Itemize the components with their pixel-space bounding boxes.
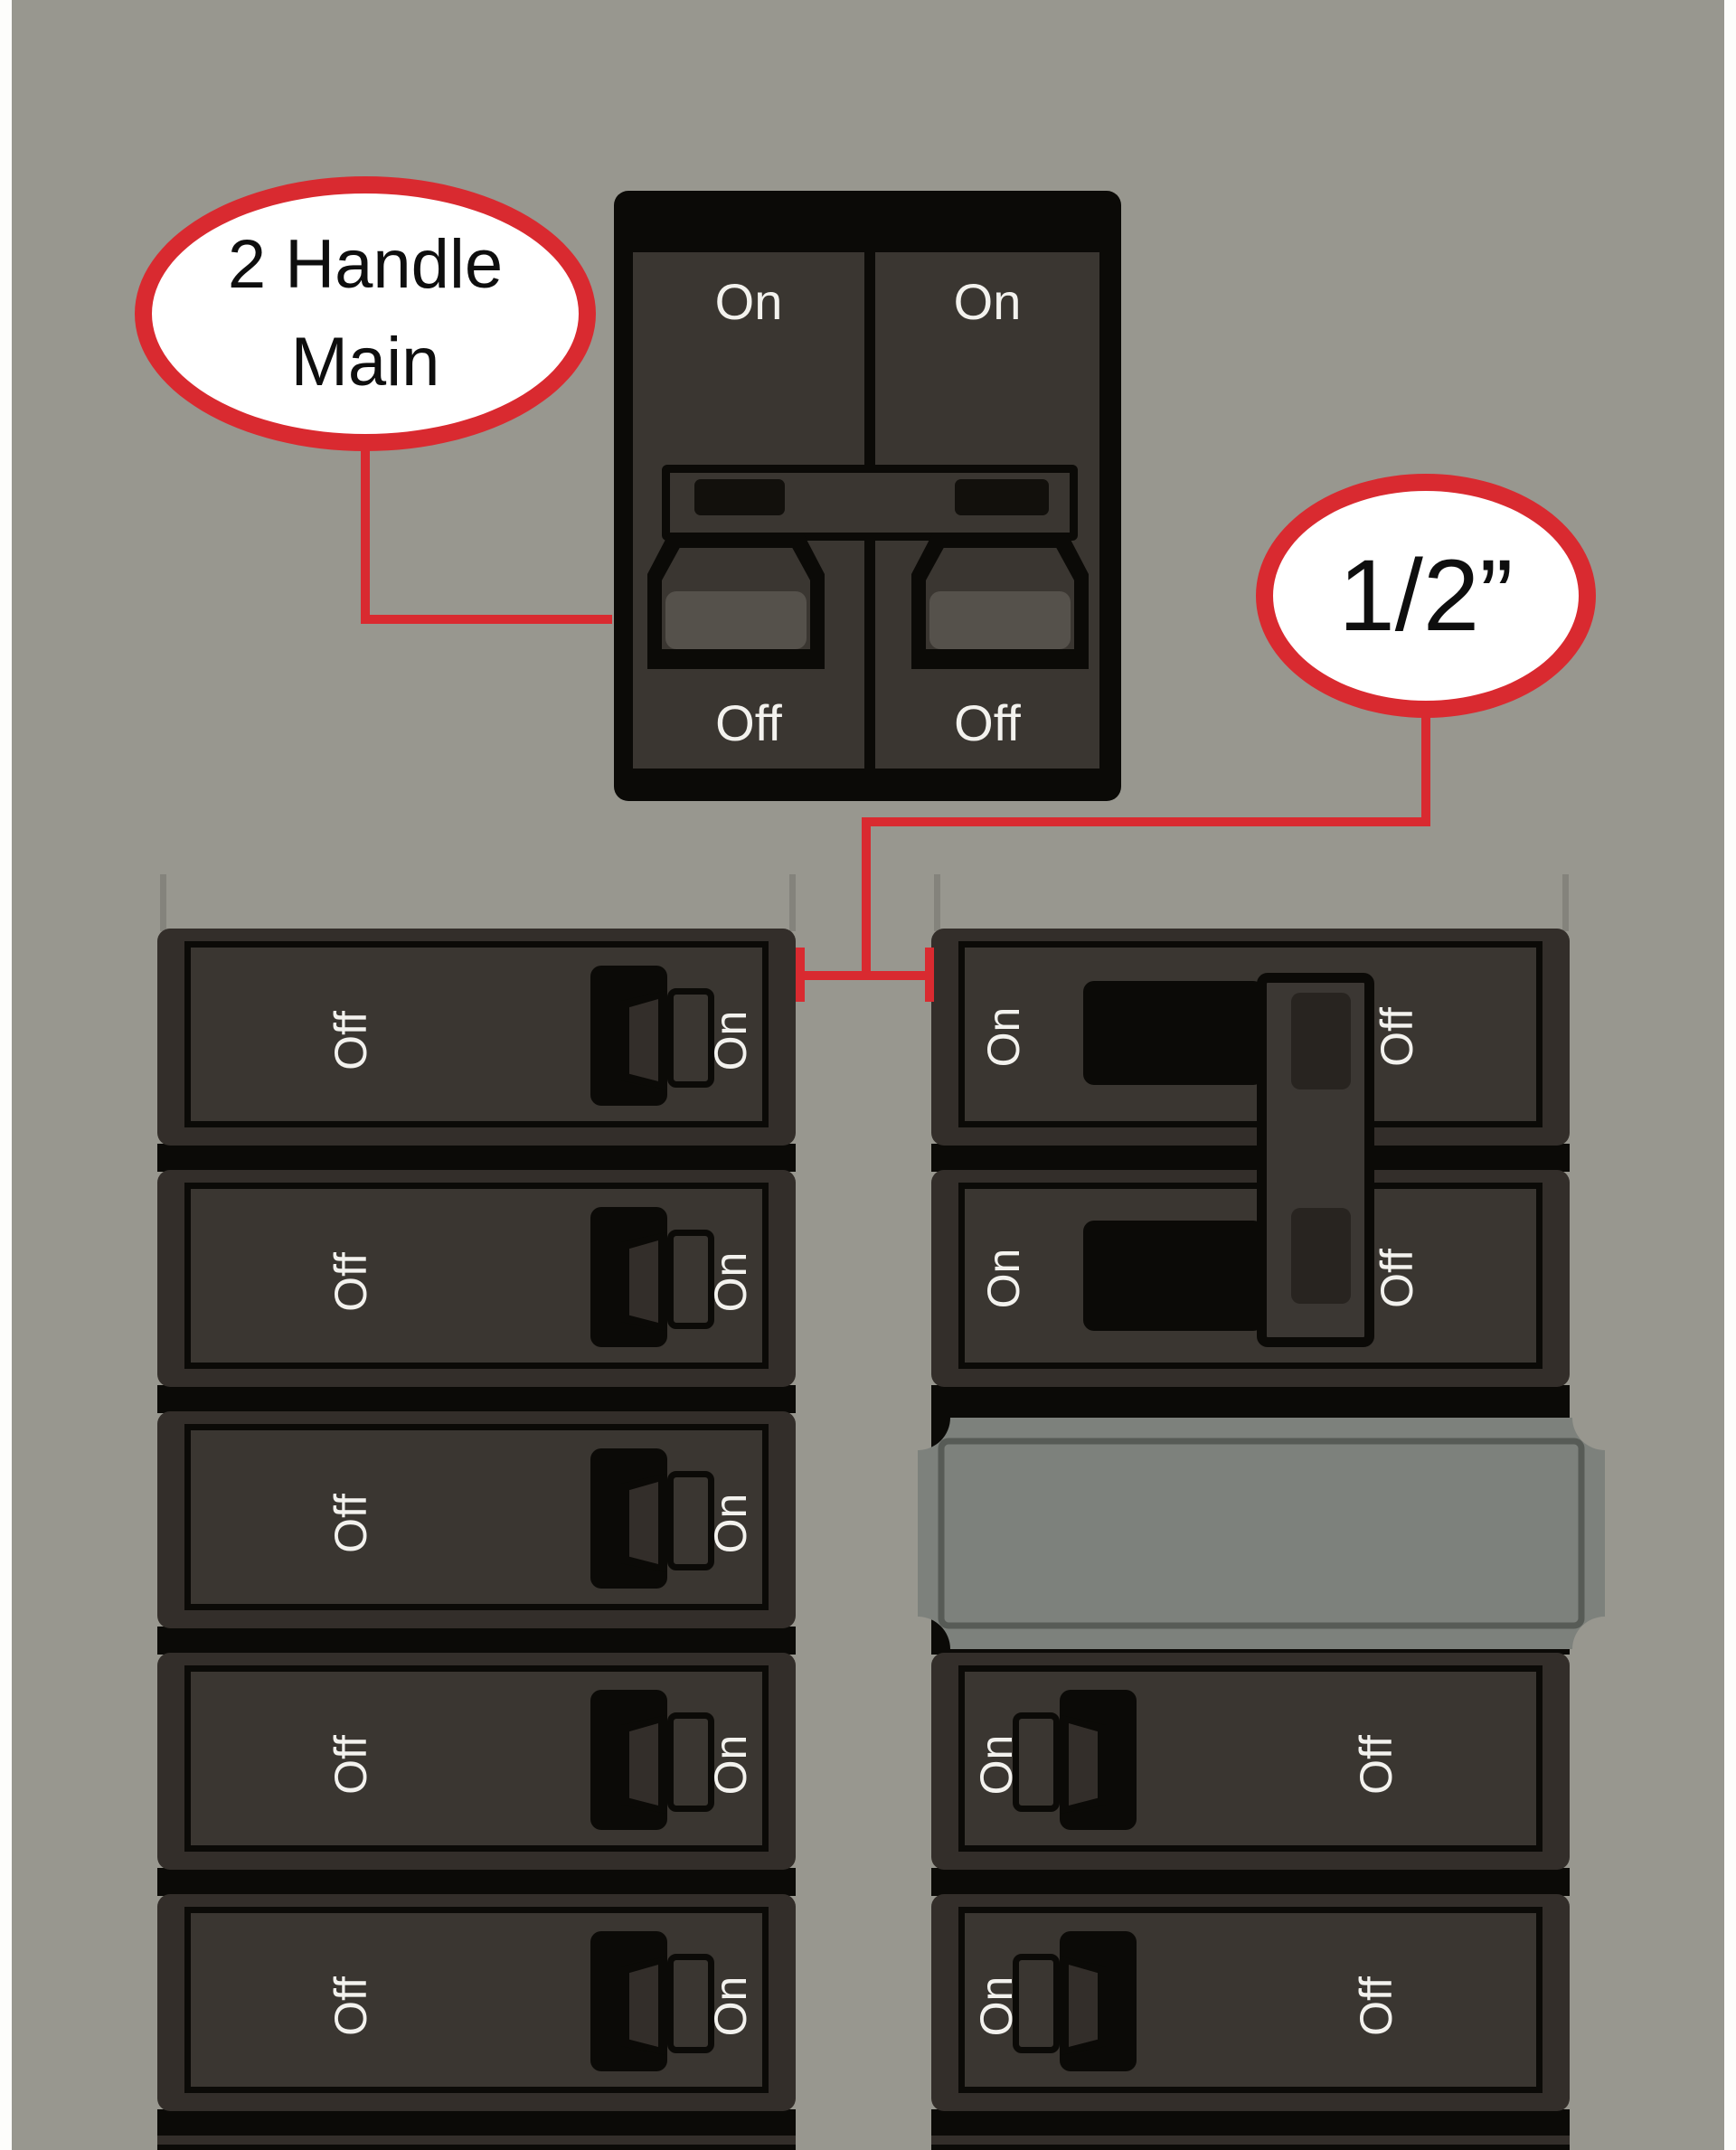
panel-rail	[934, 874, 940, 931]
handle-grip	[621, 1474, 666, 1572]
handle-tip	[667, 988, 714, 1088]
off-label: Off	[1371, 1007, 1423, 1067]
tie-bar-grip-pad	[1291, 1208, 1351, 1304]
breaker-row-tied-pole: On Off	[931, 929, 1570, 1146]
gap-measure-line	[800, 971, 930, 980]
tie-bar-grip-pad	[694, 479, 785, 515]
handle-grip	[621, 1715, 666, 1814]
handle-grip	[665, 591, 807, 649]
partial-breaker-row	[931, 2136, 1570, 2150]
callout-leader-line	[361, 615, 612, 624]
breaker-handle	[590, 966, 717, 1112]
breaker-column-left: Off On Off On Off On	[157, 929, 796, 2150]
row-separator	[157, 2109, 796, 2137]
breaker-handle	[590, 1207, 717, 1353]
page-edge	[0, 0, 12, 2150]
on-label: On	[977, 1007, 1030, 1068]
callout-two-handle-main: 2 Handle Main	[135, 176, 596, 451]
breaker-row: Off On	[157, 1653, 796, 1870]
panel-rail	[160, 874, 166, 931]
handle-tip	[1013, 1954, 1060, 2053]
handle-grip	[1061, 1957, 1106, 2055]
breaker-row: Off On	[157, 1411, 796, 1628]
row-separator	[931, 2109, 1570, 2137]
panel-rail	[1562, 874, 1569, 931]
handle-tip	[1013, 1712, 1060, 1812]
handle-grip	[621, 1232, 666, 1331]
off-label: Off	[325, 1976, 377, 2036]
callout-leader-line	[862, 817, 871, 980]
gap-measure-end-cap	[796, 948, 805, 1002]
row-separator	[931, 1868, 1570, 1896]
breaker-row-tied-pole: On Off	[931, 1170, 1570, 1387]
callout-leader-line	[361, 450, 370, 624]
breaker-row: Off On	[157, 929, 796, 1146]
page-edge	[1724, 0, 1736, 2150]
breaker-row: On Off	[931, 1653, 1570, 1870]
row-separator	[157, 1144, 796, 1172]
breaker-handle	[647, 533, 825, 669]
tie-bar-grip-pad	[955, 479, 1049, 515]
on-label: On	[977, 1249, 1030, 1309]
callout-leader-line	[862, 817, 1430, 826]
on-label: On	[954, 272, 1022, 331]
off-label: Off	[325, 1011, 377, 1070]
tie-bar-grip-pad	[1291, 993, 1351, 1089]
handle-grip	[621, 1957, 666, 2055]
row-separator	[157, 1868, 796, 1896]
callout-text-line: 1/2”	[1339, 545, 1514, 646]
callout-text-line: 2 Handle	[228, 216, 503, 314]
handle-tip	[667, 1471, 714, 1570]
handle-recess	[1083, 1221, 1264, 1331]
off-label: Off	[325, 1494, 377, 1553]
main-breaker: On Off On Off	[614, 191, 1121, 801]
partial-breaker-row	[157, 2136, 796, 2150]
breaker-handle	[911, 533, 1089, 669]
handle-grip	[929, 591, 1071, 649]
panel-rail	[789, 874, 796, 931]
callout-half-inch: 1/2”	[1256, 474, 1596, 718]
handle-tip	[667, 1954, 714, 2053]
off-label: Off	[1350, 1735, 1402, 1795]
breaker-row: Off On	[157, 1894, 796, 2111]
breaker-handle	[1010, 1690, 1137, 1836]
gap-measure-end-cap	[925, 948, 934, 1002]
blank-filler-plate	[918, 1418, 1605, 1649]
off-label: Off	[1371, 1249, 1423, 1308]
handle-grip	[1061, 1715, 1106, 1814]
handle-tip	[667, 1230, 714, 1329]
breaker-row: On Off	[931, 1894, 1570, 2111]
breaker-handle	[590, 1690, 717, 1836]
off-label: Off	[1350, 1976, 1402, 2036]
off-label: Off	[715, 693, 782, 752]
off-label: Off	[325, 1735, 377, 1795]
handle-recess	[1083, 981, 1264, 1085]
breaker-handle	[590, 1448, 717, 1595]
breaker-handle	[1010, 1931, 1137, 2078]
breaker-handle	[590, 1931, 717, 2078]
handle-tip	[667, 1712, 714, 1812]
breaker-panel-diagram: On Off On Off Off On	[0, 0, 1736, 2150]
handle-grip	[621, 991, 666, 1089]
off-label: Off	[954, 693, 1021, 752]
row-separator	[157, 1627, 796, 1655]
callout-text-line: Main	[291, 314, 440, 411]
on-label: On	[715, 272, 783, 331]
row-separator	[931, 1144, 1570, 1172]
breaker-row: Off On	[157, 1170, 796, 1387]
row-separator	[157, 1385, 796, 1413]
callout-leader-line	[1421, 716, 1430, 826]
off-label: Off	[325, 1252, 377, 1312]
